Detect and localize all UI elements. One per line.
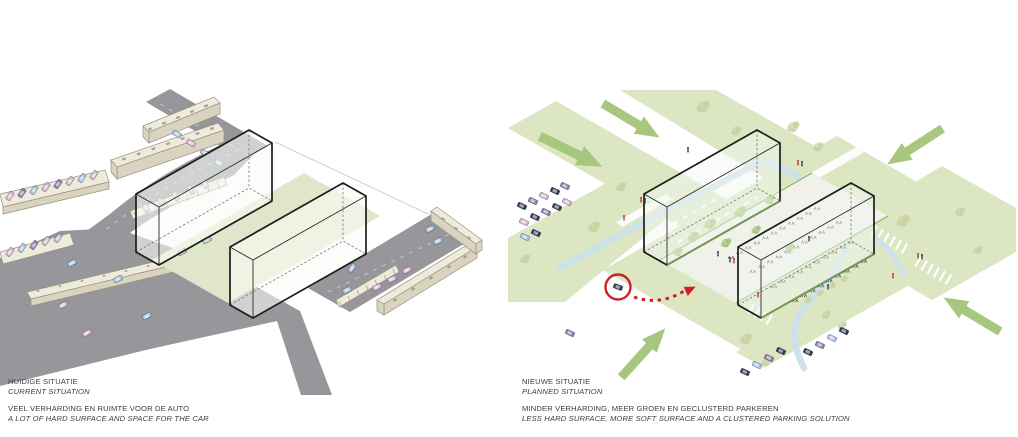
- car-icon: [530, 213, 540, 221]
- right-caption: NIEUWE SITUATIE PLANNED SITUATION MINDER…: [522, 377, 850, 424]
- green-arrow-icon: [614, 322, 673, 384]
- planned-situation-diagram: [508, 0, 1018, 437]
- green-arrow-icon: [882, 120, 948, 173]
- car-icon: [839, 327, 849, 335]
- left-title: HUIDIGE SITUATIE: [8, 377, 209, 387]
- car-icon: [565, 329, 575, 337]
- left-subtitle: CURRENT SITUATION: [8, 387, 209, 397]
- car-icon: [560, 182, 570, 190]
- car-icon: [815, 341, 825, 349]
- car-icon: [803, 348, 813, 356]
- car-icon: [519, 218, 529, 226]
- car-icon: [541, 208, 551, 216]
- car-icon: [562, 198, 572, 206]
- car-icon: [528, 197, 538, 205]
- left-description-en: A LOT OF HARD SURFACE AND SPACE FOR THE …: [8, 414, 209, 424]
- comparison-figure: HUIDIGE SITUATIE CURRENT SITUATION VEEL …: [0, 0, 1018, 437]
- car-icon: [740, 368, 750, 376]
- current-situation-diagram: [0, 0, 510, 437]
- car-icon: [550, 187, 560, 195]
- left-caption: HUIDIGE SITUATIE CURRENT SITUATION VEEL …: [8, 377, 209, 424]
- car-icon: [827, 334, 837, 342]
- car-icon: [613, 283, 623, 291]
- green-arrow-icon: [938, 289, 1005, 340]
- car-icon: [539, 192, 549, 200]
- left-description: VEEL VERHARDING EN RUIMTE VOOR DE AUTO: [8, 404, 209, 414]
- right-subtitle: PLANNED SITUATION: [522, 387, 850, 397]
- car-icon: [517, 202, 527, 210]
- person-icon: [687, 147, 689, 153]
- right-title: NIEUWE SITUATIE: [522, 377, 850, 387]
- right-description-en: LESS HARD SURFACE, MORE SOFT SURFACE AND…: [522, 414, 850, 424]
- tree-icon: [787, 121, 800, 132]
- car-icon: [552, 203, 562, 211]
- right-description: MINDER VERHARDING, MEER GROEN EN GECLUST…: [522, 404, 850, 414]
